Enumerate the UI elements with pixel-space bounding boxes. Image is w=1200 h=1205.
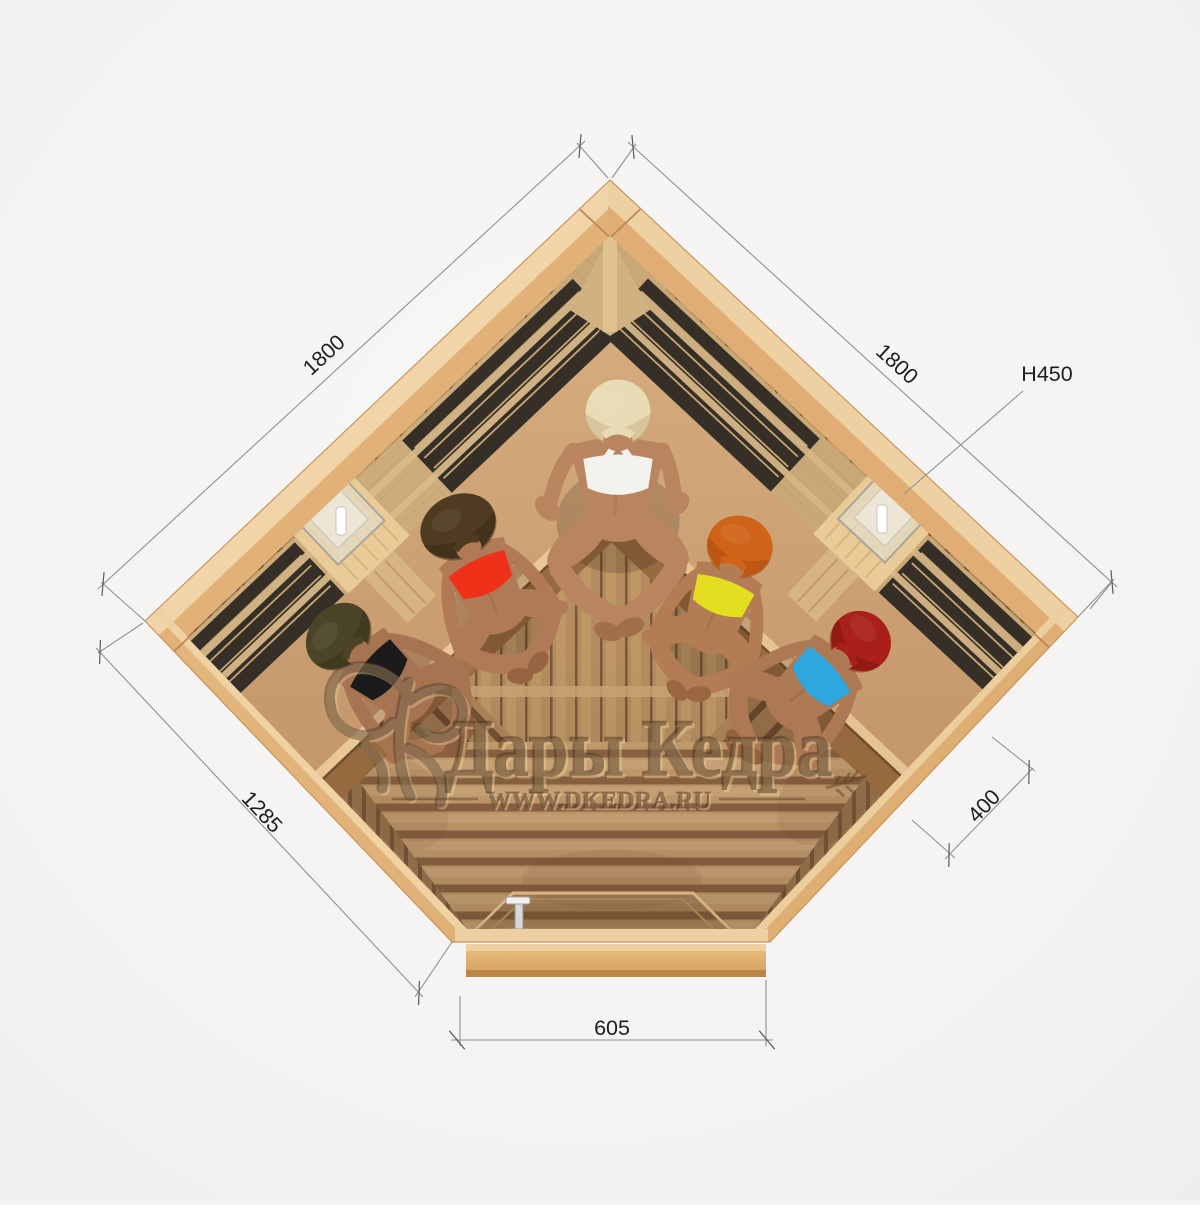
svg-text:H450: H450 <box>1021 362 1072 386</box>
svg-text:WWW.DKEDRA.RU: WWW.DKEDRA.RU <box>487 788 711 814</box>
svg-text:605: 605 <box>594 1016 630 1040</box>
svg-text:Дары Кедра: Дары Кедра <box>444 702 832 793</box>
